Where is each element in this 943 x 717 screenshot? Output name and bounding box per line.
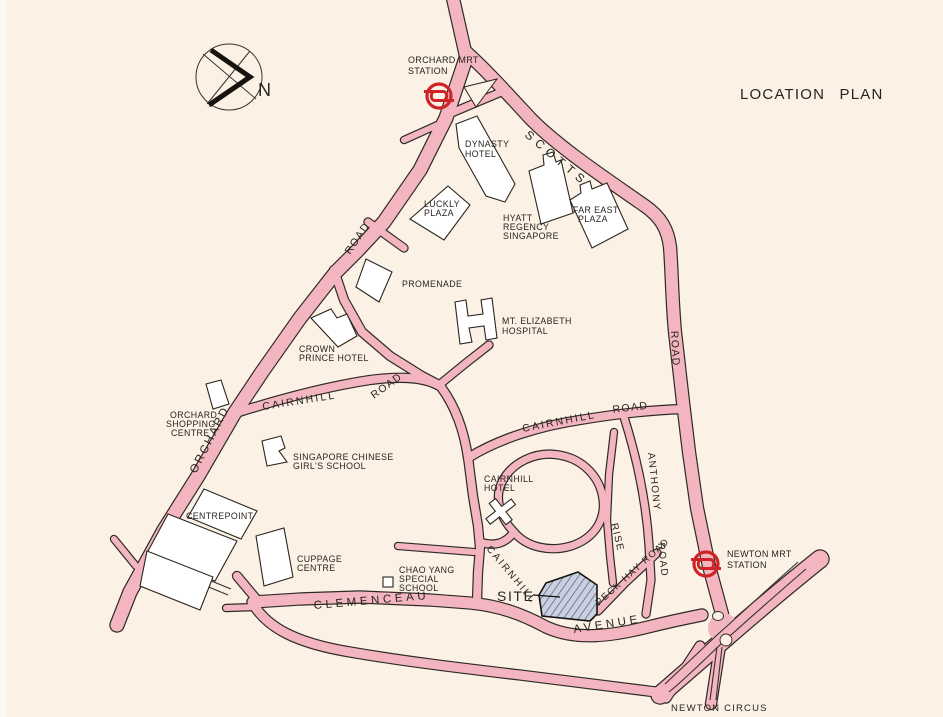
building-mt-elizabeth-hospital — [455, 298, 497, 344]
label-cuppage-2: CENTRE — [297, 563, 336, 573]
newton-mrt-label-2: STATION — [727, 560, 767, 570]
circus-island-2 — [720, 634, 732, 646]
road-spur-west — [114, 539, 136, 566]
label-mteliz-2: HOSPITAL — [502, 326, 548, 336]
orchard-mrt-label-1: ORCHARD MRT — [408, 55, 479, 65]
label-centrepoint: CENTREPOINT — [186, 511, 254, 521]
label-newton-circus: NEWTON CIRCUS — [671, 703, 768, 714]
road-fills — [114, 0, 820, 704]
orchard-mrt-label-2: STATION — [408, 66, 448, 76]
buildings-layer — [140, 116, 628, 610]
site-label: SITE — [497, 588, 535, 604]
building-orchard-shopping-centre — [206, 380, 229, 409]
building-dynasty-hotel — [456, 116, 515, 202]
label-scgs-2: GIRL'S SCHOOL — [293, 461, 366, 471]
label-promenade: PROMENADE — [402, 279, 462, 289]
label-fareast-2: PLAZA — [578, 214, 608, 224]
north-compass-icon — [196, 44, 262, 110]
road-clemenceau-prong — [237, 576, 258, 601]
orchard-mrt-icon — [424, 84, 454, 108]
label-cairnhillhotel-2: HOTEL — [484, 483, 515, 493]
building-singapore-chinese-girls-school — [262, 436, 287, 466]
label-scotts-road: ROAD — [668, 331, 682, 368]
north-label: N — [258, 80, 271, 100]
page-title: LOCATION PLAN — [740, 86, 884, 103]
map-svg: LOCATION PLAN N ORCHARD MRT STATION NEWT… — [0, 0, 943, 717]
label-mteliz-1: MT. ELIZABETH — [502, 316, 572, 326]
circus-island-1 — [713, 612, 724, 621]
label-dynasty-1: DYNASTY — [465, 139, 509, 149]
newton-mrt-label-1: NEWTON MRT — [727, 549, 792, 559]
label-hyatt-3: SINGAPORE — [503, 231, 559, 241]
building-cuppage-centre — [256, 528, 293, 586]
label-dynasty-2: HOTEL — [465, 149, 496, 159]
label-chaoyang-3: SCHOOL — [399, 583, 439, 593]
label-crownprince-2: PRINCE HOTEL — [299, 353, 369, 363]
road-hospital-stub — [439, 345, 489, 385]
building-promenade — [356, 259, 392, 302]
building-chao-yang-school — [383, 577, 393, 587]
label-orchardsc-3: CENTRE — [171, 428, 210, 438]
location-plan-map: LOCATION PLAN N ORCHARD MRT STATION NEWT… — [0, 0, 943, 717]
label-cairnhill-east: CAIRNHILL — [521, 409, 597, 435]
label-luckly-2: PLAZA — [424, 208, 454, 218]
